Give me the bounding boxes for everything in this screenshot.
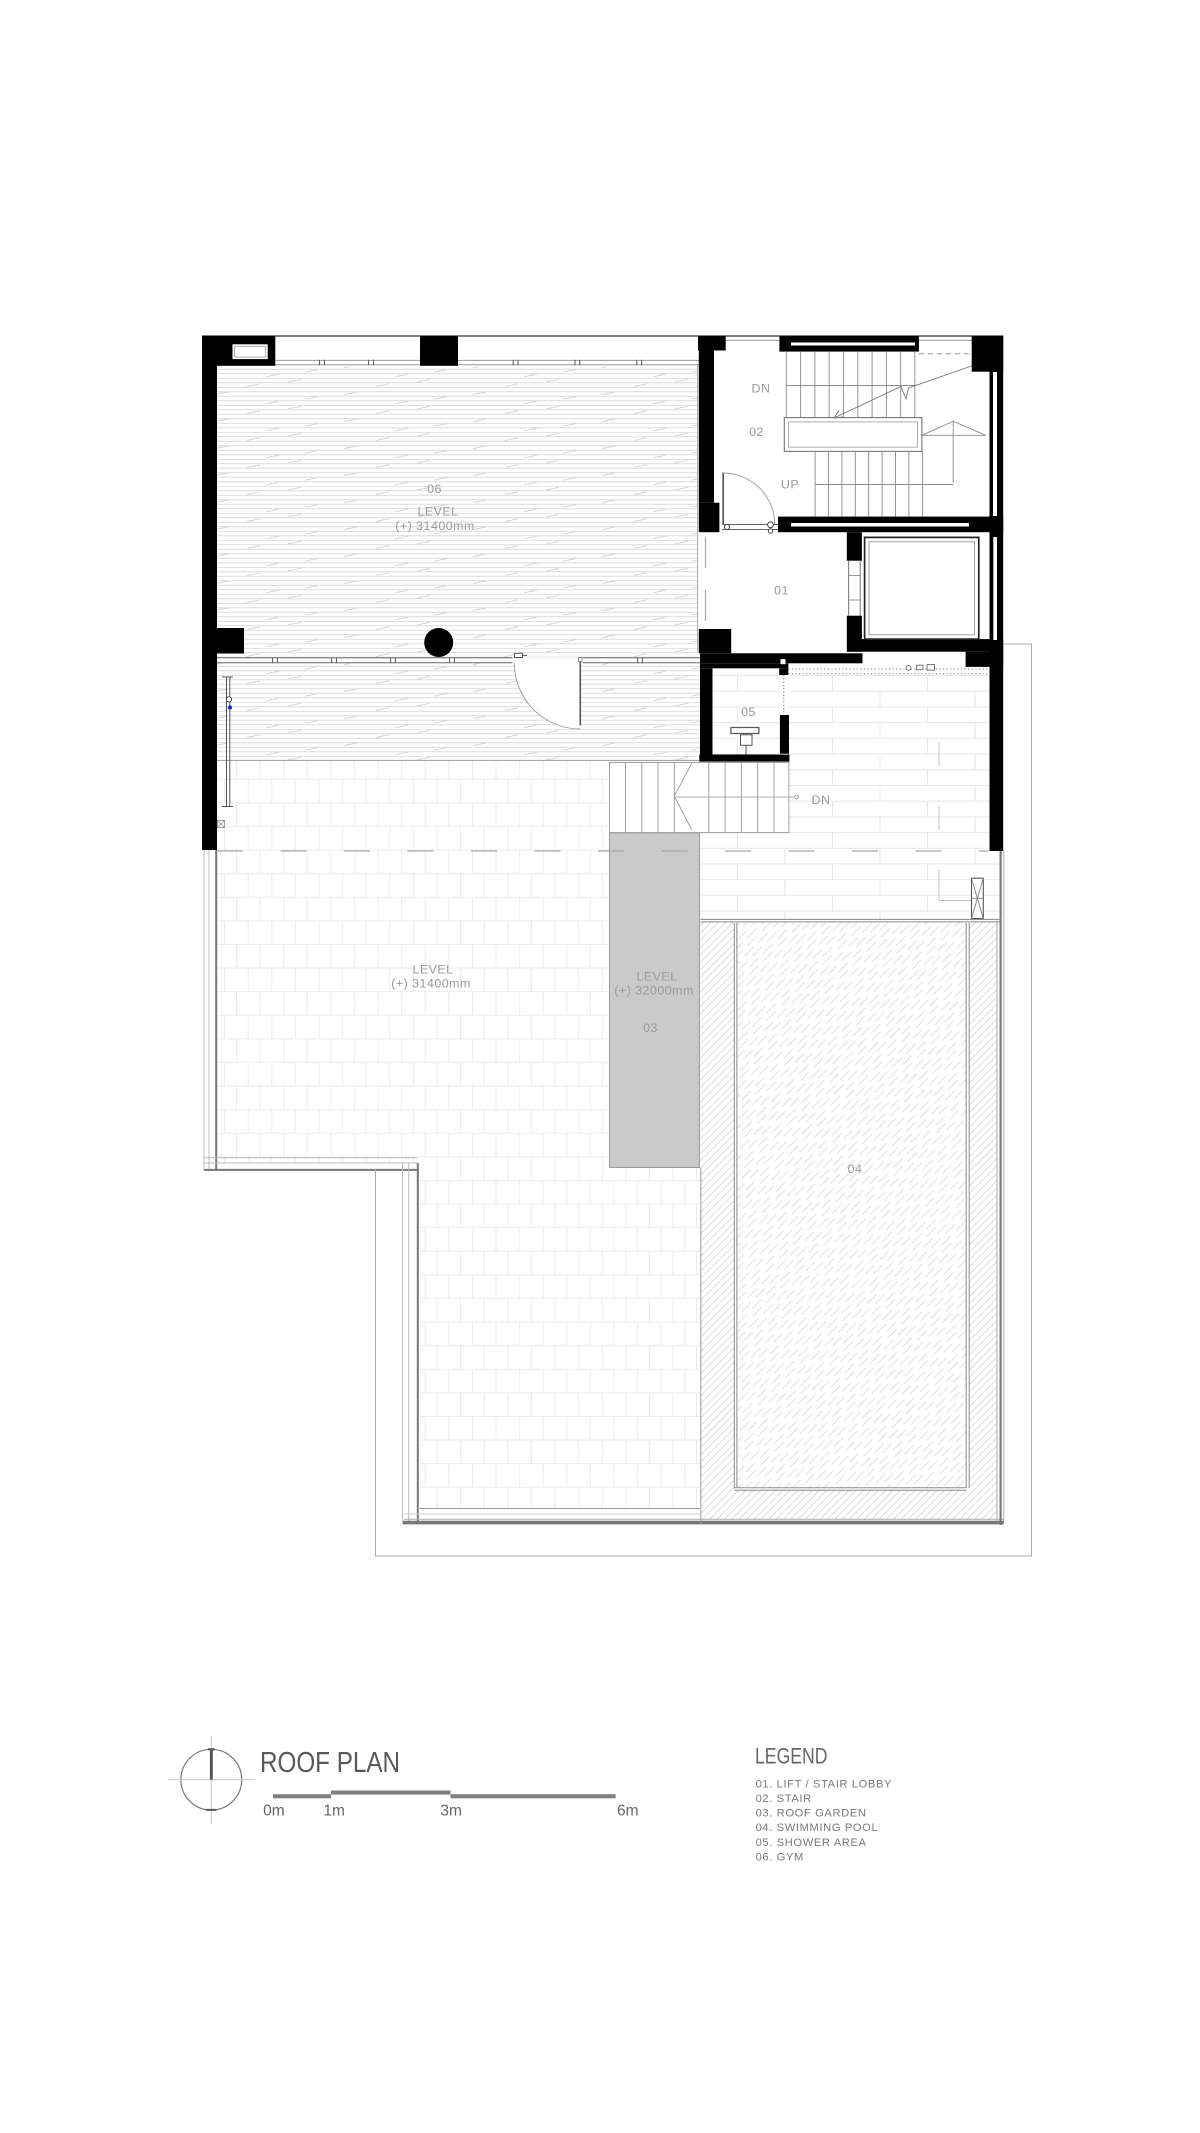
svg-text:05. SHOWER AREA: 05. SHOWER AREA	[756, 1837, 867, 1849]
svg-text:01. LIFT / STAIR LOBBY: 01. LIFT / STAIR LOBBY	[756, 1778, 893, 1790]
svg-text:(+) 31400mm: (+) 31400mm	[391, 976, 471, 990]
svg-text:6m: 6m	[617, 1803, 639, 1820]
svg-text:06. GYM: 06. GYM	[756, 1851, 804, 1863]
svg-text:DN: DN	[752, 382, 771, 396]
svg-text:03. ROOF GARDEN: 03. ROOF GARDEN	[756, 1808, 867, 1820]
svg-text:04: 04	[848, 1162, 863, 1176]
svg-text:(+) 31400mm: (+) 31400mm	[395, 519, 475, 533]
svg-text:01: 01	[774, 584, 789, 598]
svg-text:LEVEL: LEVEL	[417, 505, 458, 519]
svg-text:UP: UP	[781, 478, 799, 492]
svg-text:1m: 1m	[323, 1803, 345, 1820]
svg-text:3m: 3m	[440, 1803, 462, 1820]
svg-text:03: 03	[643, 1021, 658, 1035]
svg-text:ROOF PLAN: ROOF PLAN	[260, 1747, 400, 1779]
svg-text:04. SWIMMING POOL: 04. SWIMMING POOL	[756, 1822, 879, 1834]
svg-text:(+) 32000mm: (+) 32000mm	[614, 983, 694, 997]
svg-text:DN: DN	[812, 793, 831, 807]
svg-text:0m: 0m	[263, 1803, 285, 1820]
svg-text:06: 06	[427, 482, 442, 496]
svg-text:LEVEL: LEVEL	[636, 970, 677, 984]
svg-text:LEVEL: LEVEL	[412, 963, 453, 977]
svg-text:LEGEND: LEGEND	[755, 1744, 828, 1769]
svg-text:02. STAIR: 02. STAIR	[756, 1793, 812, 1805]
svg-text:05: 05	[741, 705, 756, 719]
svg-text:02: 02	[749, 425, 764, 439]
